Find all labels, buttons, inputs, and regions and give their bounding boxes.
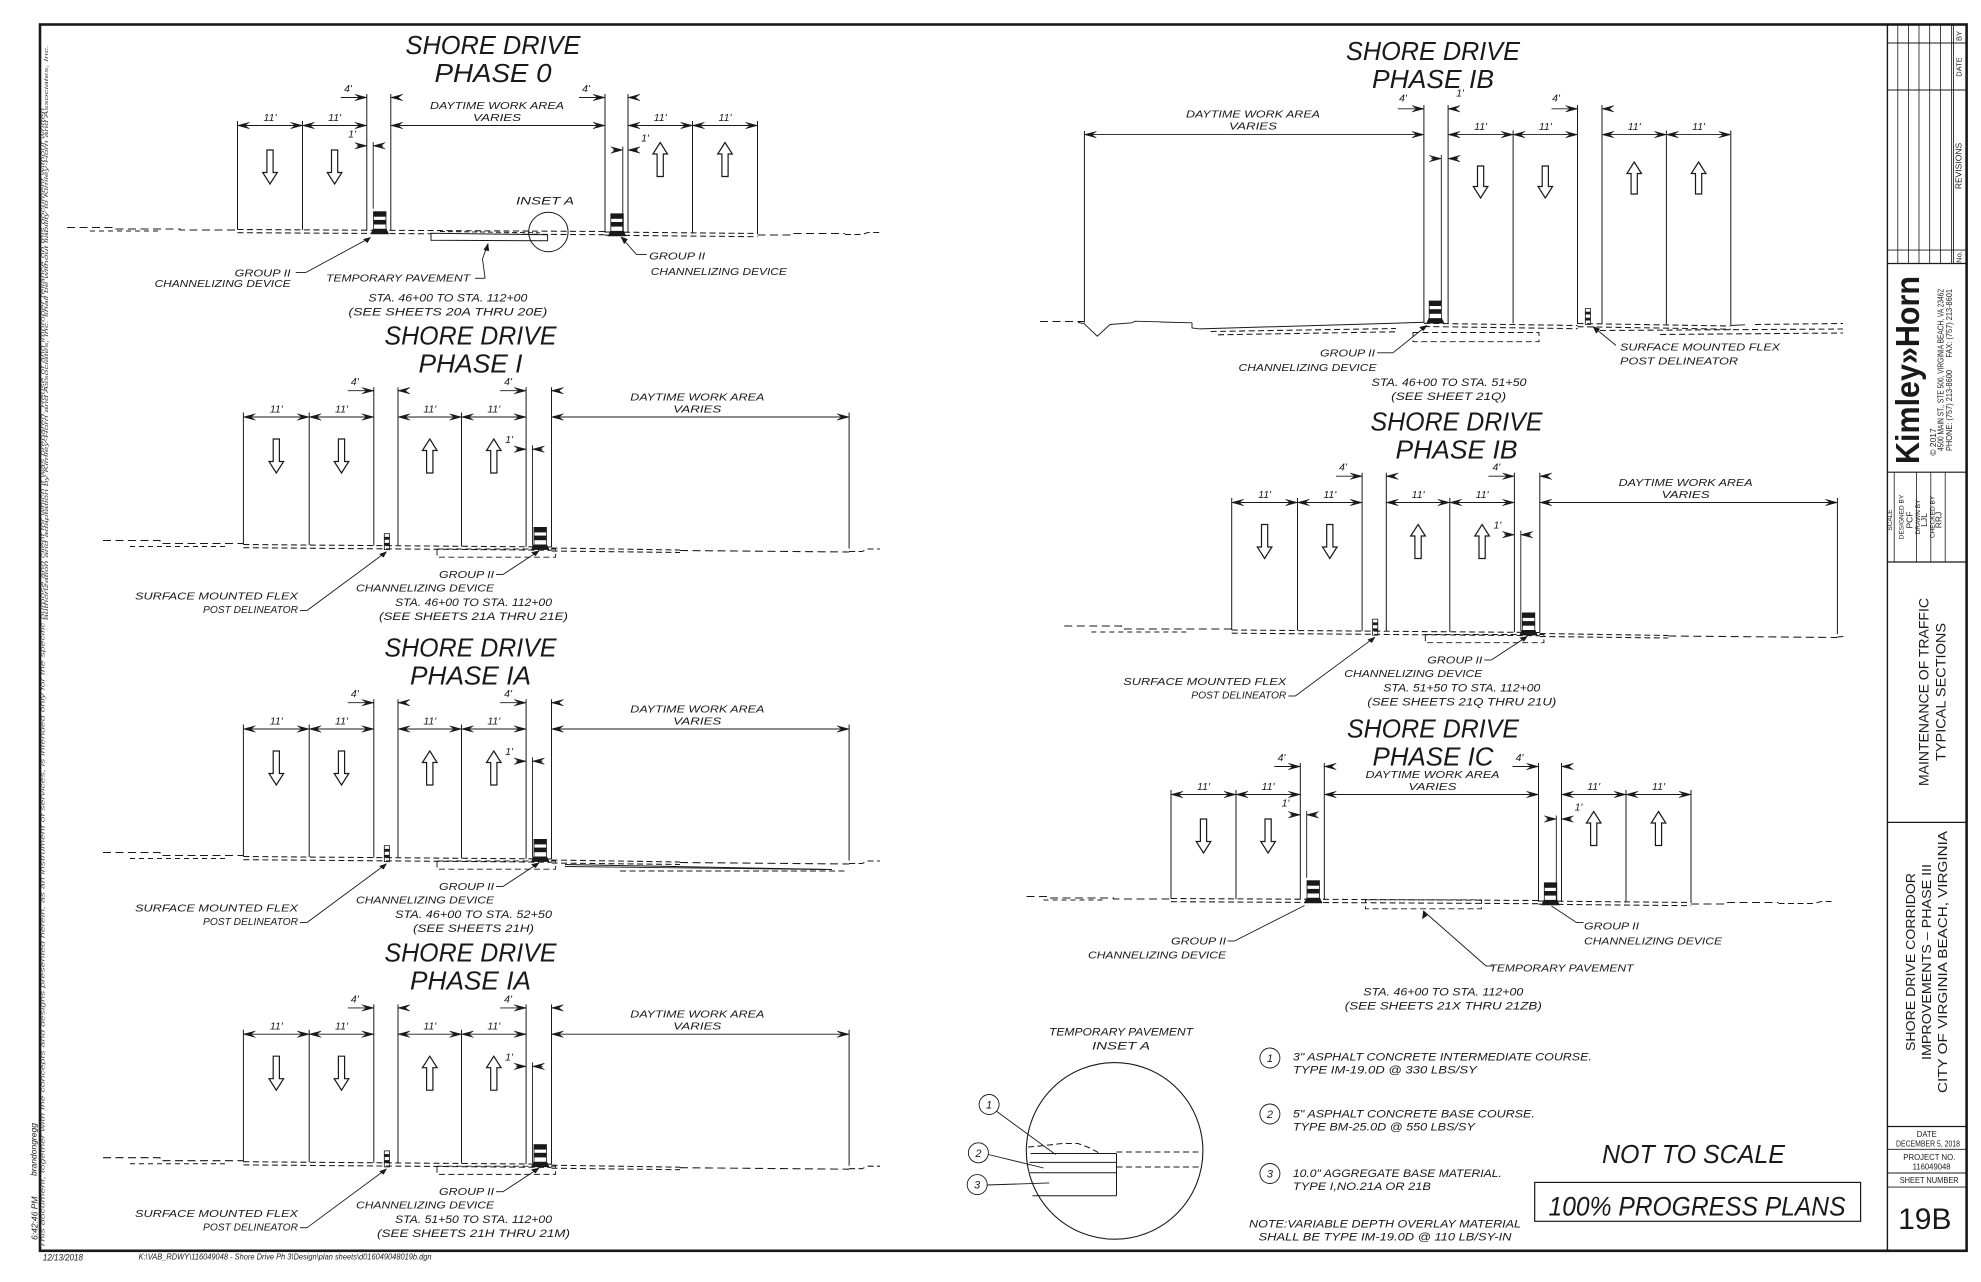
svg-text:SHORE DRIVE CORRIDOR: SHORE DRIVE CORRIDOR: [1903, 873, 1918, 1051]
svg-text:GROUP II: GROUP II: [439, 882, 494, 893]
svg-text:1': 1': [1456, 88, 1465, 100]
svg-text:4': 4': [582, 83, 591, 95]
svg-text:STA. 51+50 TO STA. 112+00: STA. 51+50 TO STA. 112+00: [395, 1214, 553, 1226]
svg-text:VARIES: VARIES: [673, 404, 721, 416]
svg-text:TEMPORARY PAVEMENT: TEMPORARY PAVEMENT: [1049, 1027, 1194, 1039]
svg-text:DAYTIME WORK AREA: DAYTIME WORK AREA: [630, 704, 764, 716]
svg-text:STA. 46+00 TO STA. 51+50: STA. 46+00 TO STA. 51+50: [1372, 377, 1528, 389]
svg-text:IMPROVEMENTS – PHASE III: IMPROVEMENTS – PHASE III: [1919, 864, 1934, 1060]
svg-text:K:\VAB_RDWY\116049048 - Shore: K:\VAB_RDWY\116049048 - Shore Drive Ph 3…: [139, 1253, 433, 1262]
svg-text:SURFACE MOUNTED FLEX: SURFACE MOUNTED FLEX: [135, 592, 298, 603]
svg-text:11': 11': [335, 404, 349, 416]
svg-text:brandongregg: brandongregg: [29, 1123, 39, 1176]
svg-text:11': 11': [423, 404, 437, 416]
svg-text:10.0" AGGREGATE BASE MATERIAL.: 10.0" AGGREGATE BASE MATERIAL.: [1293, 1168, 1502, 1180]
svg-text:POST DELINEATOR: POST DELINEATOR: [203, 917, 298, 928]
svg-text:11': 11': [1323, 489, 1337, 501]
svg-text:SURFACE MOUNTED FLEX: SURFACE MOUNTED FLEX: [135, 904, 298, 915]
svg-text:11': 11': [270, 716, 284, 728]
svg-text:DAYTIME WORK AREA: DAYTIME WORK AREA: [1619, 477, 1753, 489]
svg-text:PHASE IB: PHASE IB: [1372, 64, 1494, 94]
svg-text:11': 11': [1652, 781, 1666, 793]
svg-text:NOTE:VARIABLE DEPTH OVERLAY MA: NOTE:VARIABLE DEPTH OVERLAY MATERIAL: [1249, 1218, 1521, 1230]
svg-text:(SEE SHEETS 21H): (SEE SHEETS 21H): [413, 923, 534, 935]
svg-text:CHANNELIZING DEVICE: CHANNELIZING DEVICE: [1239, 363, 1377, 374]
svg-text:POST DELINEATOR: POST DELINEATOR: [203, 605, 298, 616]
svg-text:1': 1': [348, 129, 357, 141]
svg-text:(SEE SHEETS 21H THRU 21M): (SEE SHEETS 21H THRU 21M): [377, 1228, 570, 1240]
svg-text:PHASE IA: PHASE IA: [410, 966, 531, 996]
svg-text:4': 4': [351, 376, 360, 388]
svg-text:PHASE 0: PHASE 0: [435, 58, 553, 88]
svg-text:PHASE IC: PHASE IC: [1373, 742, 1494, 772]
svg-text:4': 4': [1278, 752, 1287, 764]
svg-text:SCALE: SCALE: [1887, 509, 1894, 531]
svg-text:VARIES: VARIES: [473, 112, 521, 124]
svg-text:TYPE I,NO.21A OR 21B: TYPE I,NO.21A OR 21B: [1293, 1181, 1431, 1193]
svg-text:2: 2: [1266, 1109, 1273, 1121]
svg-text:11': 11': [423, 716, 437, 728]
svg-text:4': 4': [1516, 752, 1525, 764]
svg-text:PHASE IB: PHASE IB: [1396, 435, 1518, 465]
svg-text:PHONE: (757) 213-8600 FAX: PHONE: (757) 213-8600 FAX: (757) 213-860…: [1945, 289, 1954, 451]
svg-text:(SEE SHEETS 21X THRU 21ZB): (SEE SHEETS 21X THRU 21ZB): [1345, 1001, 1542, 1013]
svg-text:CHANNELIZING DEVICE: CHANNELIZING DEVICE: [356, 896, 494, 907]
svg-text:11': 11': [335, 716, 349, 728]
svg-text:authorization and adaptation b: authorization and adaptation by Kimley-H…: [44, 45, 50, 620]
svg-text:11': 11': [1197, 781, 1211, 793]
svg-text:SHORE DRIVE: SHORE DRIVE: [385, 321, 558, 351]
svg-text:DAYTIME WORK AREA: DAYTIME WORK AREA: [630, 1009, 764, 1021]
svg-text:4': 4': [344, 83, 353, 95]
svg-text:DATE: DATE: [1955, 57, 1964, 76]
svg-text:(SEE SHEET 21Q): (SEE SHEET 21Q): [1391, 391, 1506, 403]
svg-text:4': 4': [1552, 93, 1561, 105]
svg-text:DECEMBER 5, 2018: DECEMBER 5, 2018: [1896, 1138, 1960, 1148]
svg-text:SHORE DRIVE: SHORE DRIVE: [1347, 714, 1520, 744]
svg-text:TYPE IM-19.0D @ 330 LBS/SY: TYPE IM-19.0D @ 330 LBS/SY: [1293, 1064, 1478, 1076]
svg-text:SURFACE MOUNTED FLEX: SURFACE MOUNTED FLEX: [135, 1209, 298, 1220]
svg-text:No.: No.: [1955, 251, 1964, 263]
svg-text:POST DELINEATOR: POST DELINEATOR: [1191, 691, 1286, 702]
svg-text:3: 3: [974, 1180, 981, 1192]
svg-text:SURFACE MOUNTED FLEX: SURFACE MOUNTED FLEX: [1123, 677, 1286, 688]
svg-text:GROUP II: GROUP II: [1171, 937, 1226, 948]
svg-text:DAYTIME WORK AREA: DAYTIME WORK AREA: [1186, 108, 1320, 120]
svg-text:SHORE DRIVE: SHORE DRIVE: [385, 633, 558, 663]
svg-text:SHEET NUMBER: SHEET NUMBER: [1900, 1176, 1959, 1185]
svg-text:5" ASPHALT CONCRETE BASE COURS: 5" ASPHALT CONCRETE BASE COURSE.: [1293, 1109, 1535, 1121]
svg-text:1': 1': [1575, 802, 1584, 814]
svg-text:STA. 51+50 TO STA. 112+00: STA. 51+50 TO STA. 112+00: [1383, 682, 1541, 694]
svg-text:GROUP II: GROUP II: [1320, 349, 1375, 360]
svg-text:Kimley»Horn: Kimley»Horn: [1889, 276, 1926, 464]
svg-text:VARIES: VARIES: [1662, 489, 1710, 501]
svg-text:11': 11': [1262, 781, 1276, 793]
svg-text:11': 11': [328, 112, 342, 124]
svg-text:GROUP II: GROUP II: [649, 252, 705, 263]
svg-text:4': 4': [351, 688, 360, 700]
svg-text:GROUP II: GROUP II: [439, 1187, 494, 1198]
svg-text:11': 11': [264, 112, 278, 124]
svg-text:6:42:46 PM: 6:42:46 PM: [30, 1196, 40, 1240]
svg-text:TEMPORARY PAVEMENT: TEMPORARY PAVEMENT: [1490, 963, 1635, 974]
svg-text:11': 11': [1587, 781, 1601, 793]
svg-text:11': 11': [335, 1021, 349, 1033]
svg-text:4': 4': [504, 688, 513, 700]
svg-text:DAYTIME WORK AREA: DAYTIME WORK AREA: [1366, 769, 1500, 781]
svg-text:CHANNELIZING DEVICE: CHANNELIZING DEVICE: [155, 279, 291, 290]
svg-text:RRJ: RRJ: [1934, 512, 1944, 529]
svg-text:PHASE I: PHASE I: [419, 349, 523, 379]
svg-text:11': 11': [1474, 121, 1488, 133]
svg-text:11': 11': [1692, 121, 1706, 133]
svg-text:PCF: PCF: [1905, 512, 1915, 529]
svg-text:STA. 46+00 TO STA. 52+50: STA. 46+00 TO STA. 52+50: [395, 909, 553, 921]
svg-text:3: 3: [1267, 1169, 1274, 1181]
svg-text:CHANNELIZING DEVICE: CHANNELIZING DEVICE: [1088, 950, 1226, 961]
svg-text:SHORE DRIVE: SHORE DRIVE: [385, 938, 558, 968]
svg-text:SHORE DRIVE: SHORE DRIVE: [1371, 407, 1544, 437]
svg-text:TYPE BM-25.0D @ 550 LBS/SY: TYPE BM-25.0D @ 550 LBS/SY: [1293, 1122, 1476, 1134]
svg-text:4': 4': [1339, 462, 1348, 474]
svg-text:11': 11': [654, 112, 668, 124]
svg-text:11': 11': [719, 112, 733, 124]
svg-text:GROUP II: GROUP II: [439, 570, 494, 581]
svg-text:INSET A: INSET A: [516, 196, 574, 208]
svg-text:CHANNELIZING DEVICE: CHANNELIZING DEVICE: [1584, 937, 1722, 948]
svg-text:(SEE SHEETS 21Q THRU 21U): (SEE SHEETS 21Q THRU 21U): [1367, 697, 1556, 709]
svg-text:4': 4': [1399, 93, 1408, 105]
svg-text:POST DELINEATOR: POST DELINEATOR: [1620, 357, 1738, 368]
svg-text:1': 1': [505, 1051, 514, 1063]
svg-text:POST DELINEATOR: POST DELINEATOR: [203, 1222, 298, 1233]
svg-text:11': 11': [1476, 489, 1490, 501]
svg-text:SURFACE MOUNTED FLEX: SURFACE MOUNTED FLEX: [1620, 343, 1780, 354]
svg-text:GROUP II: GROUP II: [1427, 656, 1482, 667]
svg-text:GROUP II: GROUP II: [1584, 922, 1639, 933]
svg-text:STA. 46+00 TO STA. 112+00: STA. 46+00 TO STA. 112+00: [1363, 987, 1524, 999]
svg-text:DAYTIME WORK AREA: DAYTIME WORK AREA: [430, 100, 564, 112]
svg-text:11': 11': [1258, 489, 1272, 501]
svg-text:1': 1': [505, 434, 514, 446]
svg-text:3" ASPHALT CONCRETE INTERMEDIA: 3" ASPHALT CONCRETE INTERMEDIATE COURSE.: [1293, 1051, 1592, 1063]
svg-text:11': 11': [1539, 121, 1553, 133]
svg-text:BY: BY: [1955, 31, 1964, 41]
svg-text:11': 11': [487, 1021, 501, 1033]
svg-text:1: 1: [986, 1100, 992, 1112]
svg-text:1': 1': [1493, 520, 1502, 532]
svg-text:116049048: 116049048: [1913, 1161, 1951, 1171]
svg-text:1': 1': [1282, 798, 1291, 810]
svg-text:11': 11': [1628, 121, 1642, 133]
svg-text:CITY OF VIRGINIA BEACH, VIRGIN: CITY OF VIRGINIA BEACH, VIRGINIA: [1935, 831, 1950, 1093]
svg-text:4': 4': [504, 376, 513, 388]
svg-text:(SEE SHEETS 21A THRU 21E): (SEE SHEETS 21A THRU 21E): [379, 611, 568, 623]
svg-text:LJL: LJL: [1919, 513, 1929, 527]
svg-text:STA. 46+00 TO STA. 112+00: STA. 46+00 TO STA. 112+00: [395, 597, 553, 609]
svg-text:11': 11': [423, 1021, 437, 1033]
svg-text:STA. 46+00 TO STA. 112+00: STA. 46+00 TO STA. 112+00: [368, 293, 528, 305]
svg-text:SHORE DRIVE: SHORE DRIVE: [1346, 36, 1521, 66]
svg-text:VARIES: VARIES: [673, 1021, 721, 1033]
svg-text:PHASE IA: PHASE IA: [410, 661, 531, 691]
svg-text:CHANNELIZING DEVICE: CHANNELIZING DEVICE: [651, 267, 787, 278]
svg-text:INSET A: INSET A: [1092, 1040, 1150, 1052]
svg-text:CHANNELIZING DEVICE: CHANNELIZING DEVICE: [356, 584, 494, 595]
svg-text:4': 4': [351, 993, 360, 1005]
svg-text:NOT TO SCALE: NOT TO SCALE: [1602, 1139, 1786, 1169]
svg-text:19B: 19B: [1898, 1203, 1951, 1236]
svg-text:CHANNELIZING DEVICE: CHANNELIZING DEVICE: [1344, 669, 1482, 680]
svg-text:TEMPORARY PAVEMENT: TEMPORARY PAVEMENT: [326, 274, 471, 285]
svg-text:TYPICAL SECTIONS: TYPICAL SECTIONS: [1934, 623, 1949, 761]
svg-text:11': 11': [487, 404, 501, 416]
svg-text:SHALL BE TYPE IM-19.0D @ 110 L: SHALL BE TYPE IM-19.0D @ 110 LB/SY-IN: [1259, 1231, 1512, 1243]
svg-text:(SEE SHEETS 20A THRU 20E): (SEE SHEETS 20A THRU 20E): [348, 306, 547, 318]
svg-text:1': 1': [641, 133, 650, 145]
svg-text:DAYTIME WORK AREA: DAYTIME WORK AREA: [630, 392, 764, 404]
svg-text:VARIES: VARIES: [1409, 781, 1457, 793]
svg-text:REVISIONS: REVISIONS: [1954, 143, 1964, 190]
svg-text:11': 11': [270, 1021, 284, 1033]
svg-text:1: 1: [1267, 1053, 1273, 1065]
svg-text:SHORE DRIVE: SHORE DRIVE: [406, 30, 582, 60]
svg-text:1': 1': [505, 746, 514, 758]
svg-text:11': 11': [1412, 489, 1426, 501]
svg-text:4': 4': [504, 993, 513, 1005]
svg-text:VARIES: VARIES: [1229, 121, 1277, 133]
svg-text:4': 4': [1492, 462, 1501, 474]
svg-text:CHANNELIZING DEVICE: CHANNELIZING DEVICE: [356, 1201, 494, 1212]
svg-text:11': 11': [270, 404, 284, 416]
svg-text:MAINTENANCE OF TRAFFIC: MAINTENANCE OF TRAFFIC: [1917, 598, 1932, 786]
svg-text:12/13/2018: 12/13/2018: [43, 1253, 83, 1263]
svg-text:100% PROGRESS PLANS: 100% PROGRESS PLANS: [1549, 1192, 1846, 1222]
svg-text:11': 11': [487, 716, 501, 728]
svg-text:VARIES: VARIES: [673, 716, 721, 728]
svg-text:2: 2: [974, 1148, 981, 1160]
